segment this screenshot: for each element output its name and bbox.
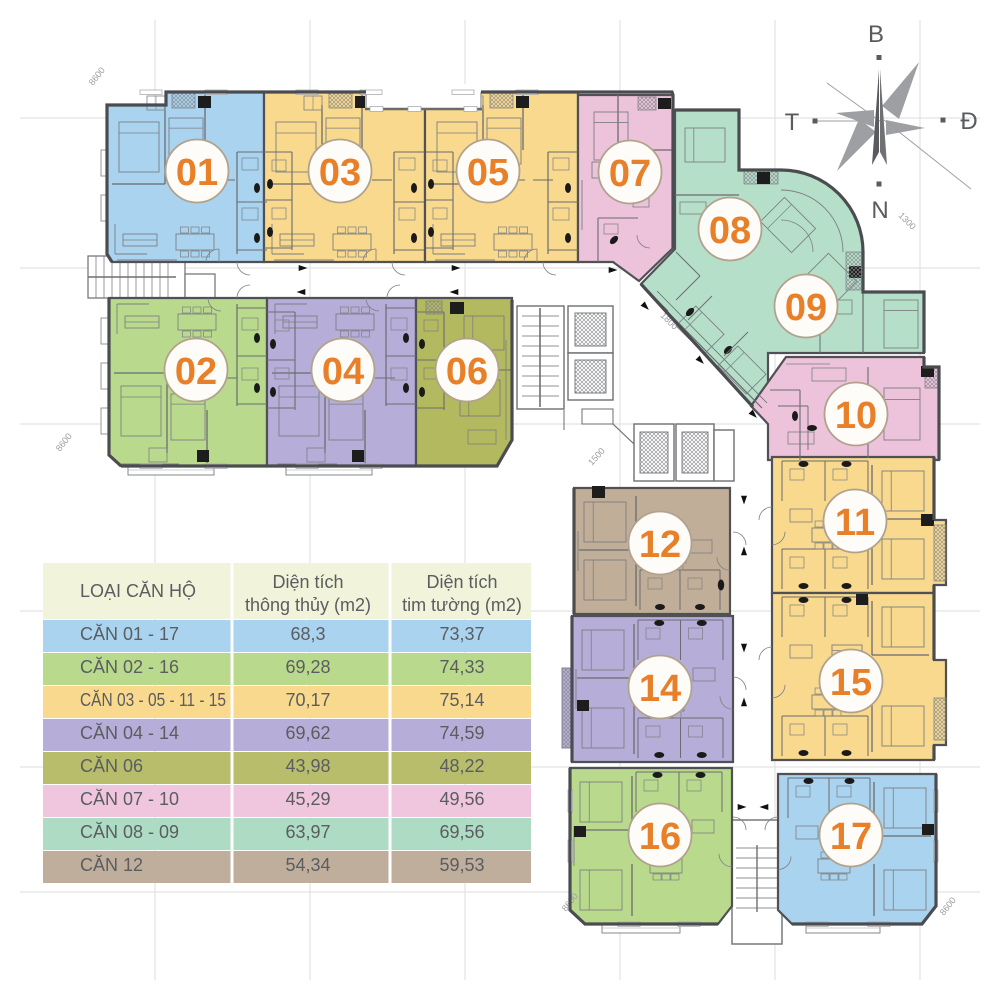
- svg-text:Đ: Đ: [960, 108, 977, 135]
- svg-text:69,56: 69,56: [439, 822, 484, 842]
- svg-text:45,29: 45,29: [285, 789, 330, 809]
- svg-text:69,28: 69,28: [285, 657, 330, 677]
- svg-text:05: 05: [467, 152, 509, 194]
- svg-text:10: 10: [835, 395, 877, 437]
- svg-text:CĂN 07 - 10: CĂN 07 - 10: [80, 789, 179, 809]
- svg-text:CĂN 08 - 09: CĂN 08 - 09: [80, 822, 179, 842]
- svg-text:thông thủy (m2): thông thủy (m2): [245, 595, 371, 615]
- svg-text:49,56: 49,56: [439, 789, 484, 809]
- svg-text:CĂN 06: CĂN 06: [80, 756, 143, 776]
- svg-text:LOẠI CĂN HỘ: LOẠI CĂN HỘ: [80, 580, 196, 601]
- svg-text:Diện tích: Diện tích: [426, 572, 497, 592]
- svg-text:CĂN 04 - 14: CĂN 04 - 14: [80, 723, 179, 743]
- svg-text:75,14: 75,14: [439, 690, 484, 710]
- svg-text:11: 11: [835, 502, 875, 544]
- svg-text:04: 04: [322, 351, 364, 393]
- svg-text:70,17: 70,17: [285, 690, 330, 710]
- svg-text:T: T: [785, 109, 800, 136]
- svg-text:Diện tích: Diện tích: [272, 572, 343, 592]
- svg-text:16: 16: [639, 816, 681, 858]
- svg-text:15: 15: [830, 662, 872, 704]
- svg-text:59,53: 59,53: [439, 855, 484, 875]
- svg-text:B: B: [868, 21, 884, 48]
- svg-text:CĂN 02 - 16: CĂN 02 - 16: [80, 657, 179, 677]
- svg-text:12: 12: [639, 524, 681, 566]
- svg-text:48,22: 48,22: [439, 756, 484, 776]
- svg-text:69,62: 69,62: [285, 723, 330, 743]
- svg-text:73,37: 73,37: [439, 624, 484, 644]
- svg-text:CĂN 12: CĂN 12: [80, 855, 143, 875]
- svg-text:03: 03: [319, 152, 361, 194]
- svg-text:54,34: 54,34: [285, 855, 330, 875]
- svg-text:74,59: 74,59: [439, 723, 484, 743]
- svg-text:63,97: 63,97: [285, 822, 330, 842]
- svg-text:74,33: 74,33: [439, 657, 484, 677]
- svg-text:43,98: 43,98: [285, 756, 330, 776]
- svg-text:07: 07: [609, 153, 651, 195]
- svg-text:68,3: 68,3: [290, 624, 325, 644]
- svg-text:CĂN 01 - 17: CĂN 01 - 17: [80, 624, 179, 644]
- svg-text:N: N: [871, 197, 888, 224]
- svg-text:tim tường (m2): tim tường (m2): [402, 595, 522, 615]
- svg-text:02: 02: [175, 351, 217, 393]
- svg-text:01: 01: [176, 152, 218, 194]
- svg-text:17: 17: [830, 816, 872, 858]
- svg-text:14: 14: [639, 668, 681, 710]
- svg-text:CĂN 03 - 05 - 11 - 15: CĂN 03 - 05 - 11 - 15: [80, 690, 226, 710]
- svg-text:08: 08: [709, 210, 751, 252]
- svg-text:09: 09: [785, 287, 827, 329]
- svg-text:06: 06: [446, 351, 488, 393]
